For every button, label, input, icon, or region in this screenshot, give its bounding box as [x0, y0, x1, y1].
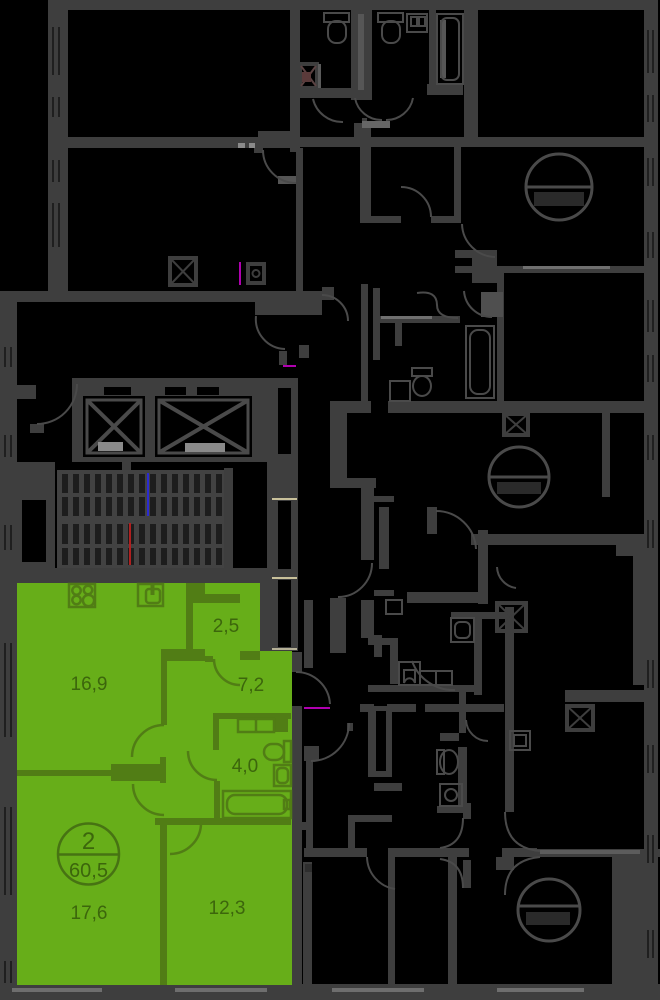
svg-text:2: 2	[82, 828, 95, 855]
svg-text:2,5: 2,5	[213, 616, 239, 637]
svg-text:17,6: 17,6	[71, 903, 108, 924]
svg-text:60,5: 60,5	[69, 860, 108, 882]
svg-text:12,3: 12,3	[209, 898, 246, 919]
svg-text:4,0: 4,0	[232, 756, 258, 777]
svg-text:16,9: 16,9	[71, 674, 108, 695]
svg-text:7,2: 7,2	[238, 675, 264, 696]
